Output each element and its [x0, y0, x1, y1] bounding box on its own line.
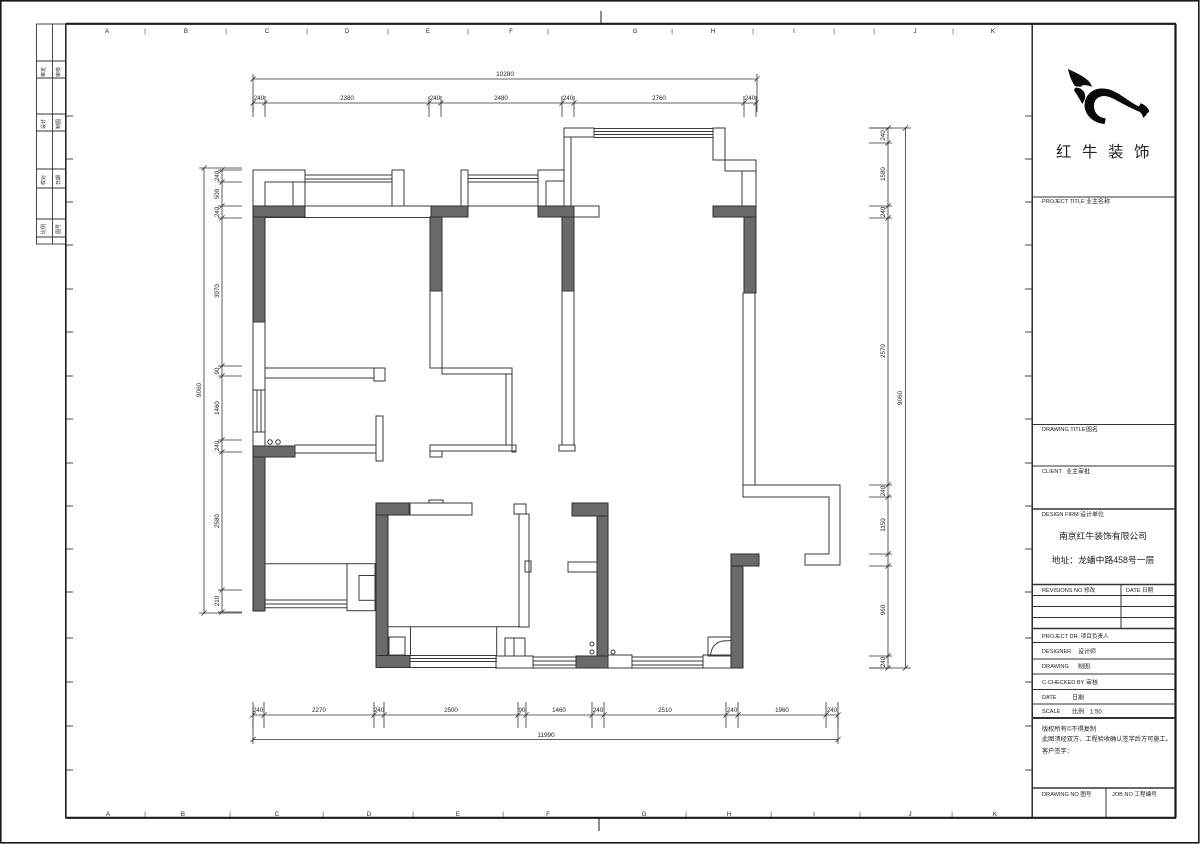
svg-text:制图: 制图: [55, 119, 62, 129]
svg-text:2380: 2380: [340, 95, 354, 102]
svg-text:审定: 审定: [40, 67, 47, 77]
svg-text:240: 240: [430, 95, 441, 102]
svg-text:210: 210: [214, 595, 221, 606]
svg-text:校对: 校对: [40, 175, 47, 185]
svg-text:JOB NO 工程编号: JOB NO 工程编号: [1112, 790, 1157, 798]
svg-text:240: 240: [745, 95, 756, 102]
svg-text:C: C: [265, 28, 270, 35]
svg-text:DATE: DATE: [1042, 695, 1057, 701]
svg-text:1460: 1460: [214, 401, 221, 415]
svg-text:制图: 制图: [1078, 663, 1090, 671]
svg-text:DRAWING TITLE: DRAWING TITLE: [1042, 427, 1086, 433]
svg-text:I: I: [793, 28, 795, 35]
svg-text:1150: 1150: [880, 518, 887, 532]
svg-text:9060: 9060: [196, 382, 203, 397]
svg-text:日期: 日期: [1072, 694, 1084, 702]
svg-text:审核: 审核: [1086, 679, 1098, 687]
svg-text:2480: 2480: [494, 95, 508, 102]
svg-text:客户签字：: 客户签字：: [1042, 747, 1073, 755]
svg-text:3070: 3070: [214, 284, 221, 298]
svg-text:240: 240: [880, 485, 887, 496]
svg-text:日期: 日期: [56, 175, 62, 185]
svg-text:业主名称: 业主名称: [1086, 198, 1110, 206]
svg-text:240: 240: [880, 656, 887, 667]
svg-text:版权所有©不得复制: 版权所有©不得复制: [1042, 725, 1096, 733]
svg-text:1960: 1960: [775, 707, 789, 714]
svg-text:设计师: 设计师: [1078, 648, 1096, 656]
svg-text:H: H: [711, 28, 715, 35]
svg-text:500: 500: [214, 188, 221, 199]
svg-text:2580: 2580: [214, 514, 221, 528]
svg-text:90: 90: [214, 367, 221, 374]
svg-text:1580: 1580: [880, 167, 887, 181]
svg-text:C: C: [275, 811, 280, 818]
svg-text:图号: 图号: [56, 224, 62, 234]
svg-text:审核: 审核: [55, 67, 62, 77]
svg-text:90: 90: [519, 707, 526, 714]
svg-text:B: B: [184, 28, 188, 35]
svg-text:DESIGN FIRM: DESIGN FIRM: [1042, 512, 1079, 518]
svg-text:240: 240: [593, 707, 604, 714]
svg-text:240: 240: [880, 206, 887, 217]
svg-text:C-CHECKED BY: C-CHECKED BY: [1042, 680, 1085, 686]
svg-text:F: F: [546, 811, 550, 818]
svg-text:红牛装饰: 红牛装饰: [1056, 143, 1160, 161]
svg-text:B: B: [181, 811, 185, 818]
svg-text:J: J: [913, 28, 916, 35]
svg-text:PROJECT TITLE: PROJECT TITLE: [1042, 199, 1085, 205]
svg-text:H: H: [727, 811, 731, 818]
svg-text:2570: 2570: [880, 344, 887, 358]
svg-text:2760: 2760: [652, 95, 666, 102]
svg-text:比例: 比例: [40, 224, 47, 234]
svg-text:2510: 2510: [658, 707, 672, 714]
svg-text:240: 240: [254, 95, 265, 102]
svg-text:11990: 11990: [537, 732, 555, 739]
svg-text:DESIGNER: DESIGNER: [1042, 649, 1071, 655]
svg-text:业主审批: 业主审批: [1066, 468, 1090, 476]
svg-text:2500: 2500: [444, 707, 458, 714]
svg-text:240: 240: [563, 95, 574, 102]
svg-text:G: G: [642, 811, 647, 818]
svg-text:此图须经双方、工程验收确认签字后方可施工。: 此图须经双方、工程验收确认签字后方可施工。: [1042, 735, 1172, 743]
svg-text:2270: 2270: [312, 707, 326, 714]
svg-text:E: E: [426, 28, 430, 35]
svg-text:240: 240: [827, 707, 838, 714]
svg-text:地址：龙蟠中路458号一层: 地址：龙蟠中路458号一层: [1052, 554, 1155, 565]
svg-text:DATE 日期: DATE 日期: [1126, 587, 1154, 594]
svg-text:240: 240: [214, 206, 221, 217]
svg-text:240: 240: [374, 707, 385, 714]
svg-text:SCALE: SCALE: [1042, 709, 1061, 715]
svg-text:10280: 10280: [496, 71, 514, 78]
svg-text:REVISIONS NO 修改: REVISIONS NO 修改: [1042, 586, 1096, 594]
svg-text:240: 240: [214, 440, 221, 451]
svg-text:1460: 1460: [552, 707, 566, 714]
svg-text:I: I: [813, 811, 815, 818]
svg-text:J: J: [908, 811, 911, 818]
svg-text:240: 240: [880, 130, 887, 141]
svg-text:G: G: [633, 28, 638, 35]
svg-text:F: F: [509, 28, 513, 35]
svg-text:设计单位: 设计单位: [1080, 511, 1104, 519]
svg-text:960: 960: [880, 604, 887, 615]
svg-text:E: E: [456, 811, 460, 818]
svg-text:D: D: [345, 28, 350, 35]
svg-text:设计: 设计: [40, 119, 47, 129]
svg-text:9060: 9060: [897, 390, 904, 405]
svg-text:图名: 图名: [1086, 426, 1098, 434]
svg-text:DRAWING: DRAWING: [1042, 664, 1069, 670]
svg-text:240: 240: [253, 707, 264, 714]
svg-text:240: 240: [214, 170, 221, 181]
svg-text:D: D: [367, 811, 372, 818]
svg-text:PROJECT DR. 项目负责人: PROJECT DR. 项目负责人: [1042, 632, 1109, 640]
svg-text:南京红牛装饰有限公司: 南京红牛装饰有限公司: [1059, 530, 1147, 541]
svg-text:DRAWING NO 图号: DRAWING NO 图号: [1042, 790, 1092, 798]
svg-text:比例: 比例: [1072, 708, 1084, 716]
svg-text:1:50: 1:50: [1090, 710, 1102, 716]
svg-text:240: 240: [727, 707, 738, 714]
svg-text:CLIENT: CLIENT: [1042, 469, 1062, 475]
